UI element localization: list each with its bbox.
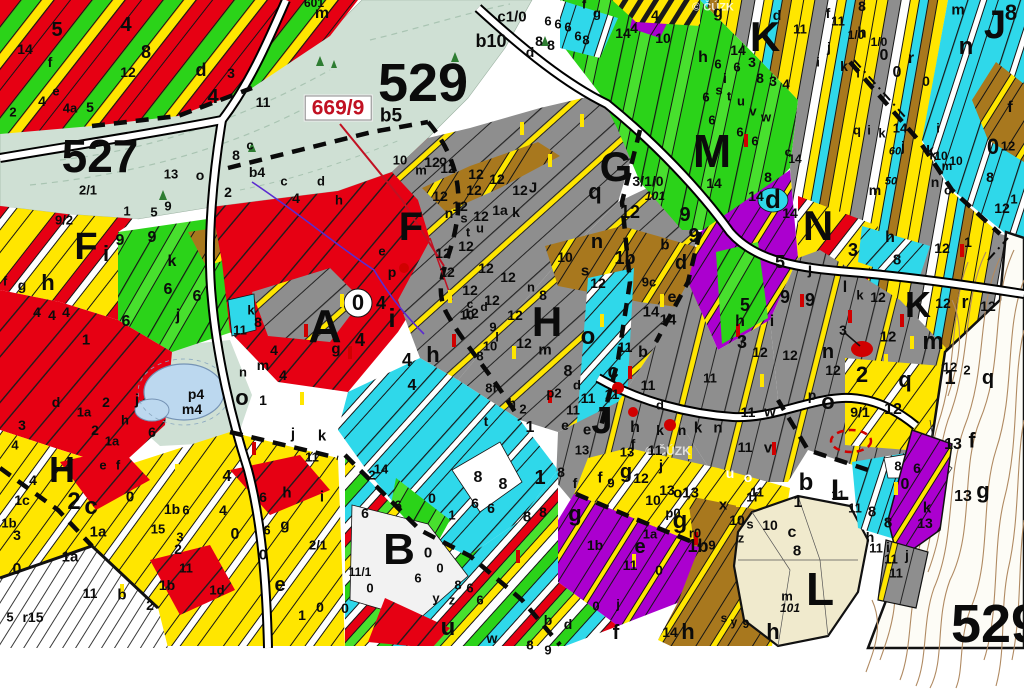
map-screenshot: 527529529669/9b5c1/0b10© ČÚZK© ČÚZKFiFAB…	[0, 0, 1024, 690]
bottom-margin	[0, 646, 1024, 690]
map-canvas	[0, 0, 1024, 690]
stand-0-blob	[344, 289, 372, 317]
